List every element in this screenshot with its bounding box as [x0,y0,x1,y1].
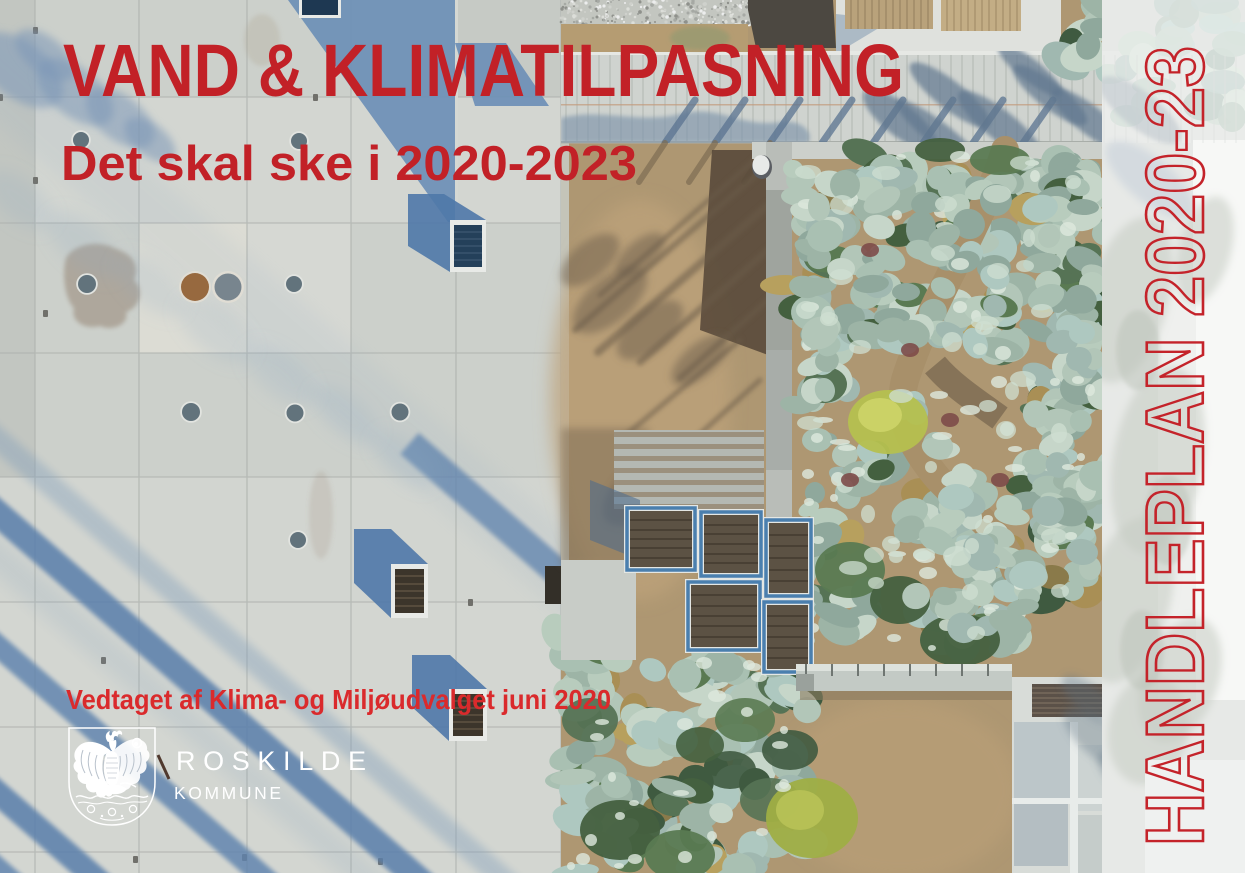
svg-text:Vedtaget af Klima- og Miljøudv: Vedtaget af Klima- og Miljøudvalget juni… [66,684,611,715]
svg-text:KOMMUNE: KOMMUNE [174,783,281,803]
svg-text:Det skal ske i 2020-2023: Det skal ske i 2020-2023 [61,137,637,191]
svg-text:HANDLEPLAN 2020-23: HANDLEPLAN 2020-23 [1130,46,1221,846]
svg-text:VAND & KLIMATILPASNING: VAND & KLIMATILPASNING [63,29,904,112]
svg-text:ROSKILDE: ROSKILDE [176,746,366,776]
